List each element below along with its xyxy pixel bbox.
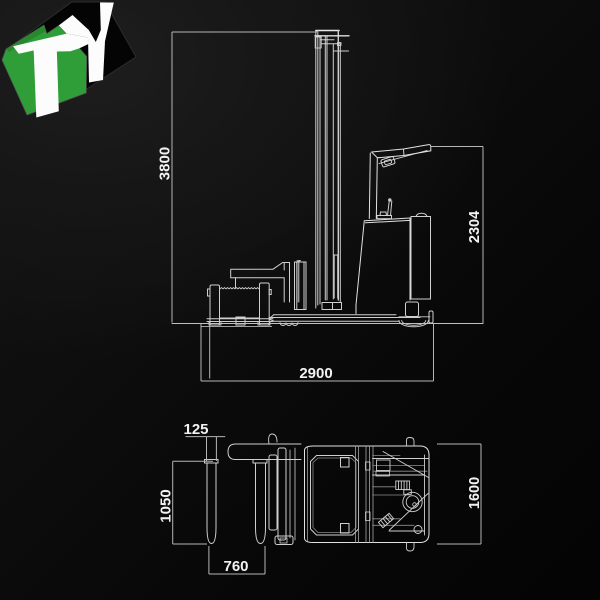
svg-text:760: 760 bbox=[223, 558, 248, 575]
svg-text:1050: 1050 bbox=[158, 489, 175, 522]
svg-text:2304: 2304 bbox=[467, 211, 483, 243]
svg-text:3800: 3800 bbox=[157, 147, 174, 180]
svg-text:1600: 1600 bbox=[467, 477, 483, 509]
svg-text:125: 125 bbox=[183, 421, 208, 438]
svg-text:2900: 2900 bbox=[299, 365, 332, 382]
